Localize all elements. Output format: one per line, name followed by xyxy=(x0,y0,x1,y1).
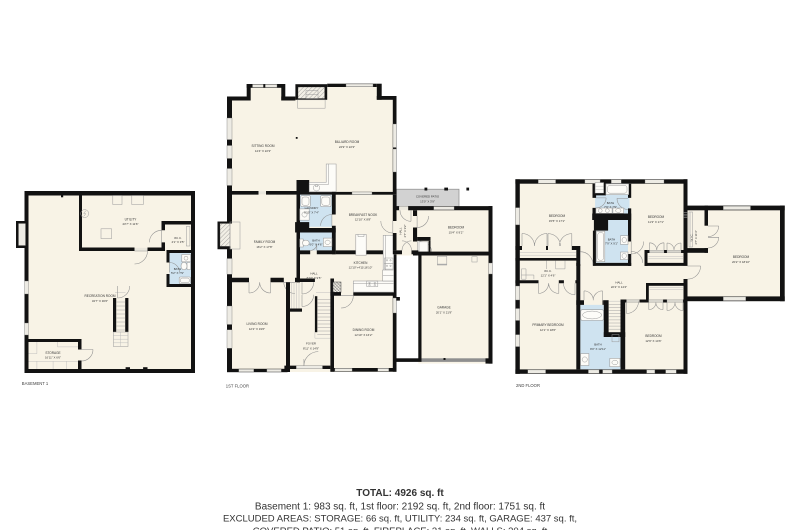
svg-text:FAMILY ROOM: FAMILY ROOM xyxy=(254,240,276,244)
svg-text:12'9" X 14'6": 12'9" X 14'6" xyxy=(645,339,661,343)
svg-text:HALL: HALL xyxy=(310,272,318,276)
svg-text:GARAGE: GARAGE xyxy=(437,306,450,310)
svg-text:DINING ROOM: DINING ROOM xyxy=(353,328,375,332)
svg-text:FOYER: FOYER xyxy=(306,342,316,346)
svg-text:LIVING ROOM: LIVING ROOM xyxy=(247,322,268,326)
svg-text:BREAKFAST NOOK: BREAKFAST NOOK xyxy=(349,213,378,217)
svg-text:6'10" X 7'4": 6'10" X 7'4" xyxy=(304,211,319,215)
svg-text:HALL: HALL xyxy=(399,227,403,235)
svg-text:BILLIARD ROOM: BILLIARD ROOM xyxy=(335,140,360,144)
svg-text:6'0" X 4'6": 6'0" X 4'6" xyxy=(309,243,322,247)
svg-text:12'2" X 19'6": 12'2" X 19'6" xyxy=(249,327,265,331)
svg-text:16'2" X 17'8": 16'2" X 17'8" xyxy=(256,245,272,249)
svg-text:RECREATION ROOM: RECREATION ROOM xyxy=(85,294,116,298)
svg-text:12'1" X 18'6": 12'1" X 18'6" xyxy=(540,328,556,332)
svg-text:7'9" X 7'9": 7'9" X 7'9" xyxy=(604,205,617,209)
svg-text:W.I.C.: W.I.C. xyxy=(544,269,552,273)
svg-text:13'0" X 3'9": 13'0" X 3'9" xyxy=(420,200,435,204)
svg-text:STORAGE: STORAGE xyxy=(45,351,60,355)
svg-text:5'2" X 7'9": 5'2" X 7'9" xyxy=(171,271,184,275)
svg-text:24'9" X 22'3": 24'9" X 22'3" xyxy=(339,145,355,149)
svg-text:COVERED PATIO: 51 sq. ft, FIRE: COVERED PATIO: 51 sq. ft, FIREPLACE: 31 … xyxy=(253,526,548,530)
svg-text:BATH: BATH xyxy=(594,343,602,347)
svg-text:SITTING ROOM: SITTING ROOM xyxy=(251,144,274,148)
svg-text:BEDROOM: BEDROOM xyxy=(648,215,665,219)
svg-text:15'4" X 9'2": 15'4" X 9'2" xyxy=(449,231,464,235)
svg-text:BEDROOM: BEDROOM xyxy=(549,214,566,218)
svg-text:BEDROOM: BEDROOM xyxy=(645,334,662,338)
svg-text:W.I.C.: W.I.C. xyxy=(690,233,694,241)
svg-text:20'1" X 21'9": 20'1" X 21'9" xyxy=(436,311,452,315)
svg-text:9'0" X 12'11": 9'0" X 12'11" xyxy=(590,347,606,351)
svg-text:4'7" X 9'2": 4'7" X 9'2" xyxy=(403,224,407,237)
svg-text:EXCLUDED AREAS: STORAGE: 66 sq: EXCLUDED AREAS: STORAGE: 66 sq. ft, UTIL… xyxy=(223,514,577,525)
svg-text:23'7" X 11'6": 23'7" X 11'6" xyxy=(122,222,138,226)
svg-text:BEDROOM: BEDROOM xyxy=(733,255,750,259)
svg-text:12'10"+4'11\16'10": 12'10"+4'11\16'10" xyxy=(349,266,373,270)
svg-text:22'2" X 14'4": 22'2" X 14'4" xyxy=(611,285,627,289)
svg-text:34'7" X 30'6": 34'7" X 30'6" xyxy=(92,299,108,303)
svg-text:TOTAL: 4926 sq. ft: TOTAL: 4926 sq. ft xyxy=(356,488,444,499)
svg-text:UTILITY: UTILITY xyxy=(125,218,138,222)
svg-text:2ND FLOOR: 2ND FLOOR xyxy=(516,383,540,388)
svg-text:LAUNDRY: LAUNDRY xyxy=(305,206,319,210)
svg-text:6'10" X 9'5": 6'10" X 9'5" xyxy=(307,276,322,280)
svg-text:12'10" X 8'8": 12'10" X 8'8" xyxy=(355,218,371,222)
svg-text:12'1" X 4'6": 12'1" X 4'6" xyxy=(541,274,556,278)
svg-text:12'10" X 16'2": 12'10" X 16'2" xyxy=(355,333,373,337)
svg-text:8'11" X 14'9": 8'11" X 14'9" xyxy=(303,347,319,351)
svg-text:PRIMARY BEDROOM: PRIMARY BEDROOM xyxy=(532,323,564,327)
svg-text:1ST FLOOR: 1ST FLOOR xyxy=(226,383,249,388)
svg-text:16'11" X 6'6": 16'11" X 6'6" xyxy=(45,356,61,360)
svg-text:15'5" X 17'1": 15'5" X 17'1" xyxy=(549,219,565,223)
svg-text:7'9" X 9'1": 7'9" X 9'1" xyxy=(605,242,618,246)
svg-text:KITCHEN: KITCHEN xyxy=(354,261,369,265)
svg-text:20'2" X 18'10": 20'2" X 18'10" xyxy=(732,260,750,264)
svg-text:4'1" X 3'5": 4'1" X 3'5" xyxy=(171,240,184,244)
svg-text:HALL: HALL xyxy=(615,281,623,285)
svg-text:BASEMENT 1: BASEMENT 1 xyxy=(22,381,49,386)
svg-text:BEDROOM: BEDROOM xyxy=(448,226,465,230)
svg-text:4'7" X 11'3": 4'7" X 11'3" xyxy=(694,230,698,245)
svg-text:Basement 1: 983 sq. ft, 1st fl: Basement 1: 983 sq. ft, 1st floor: 2192 … xyxy=(255,502,545,513)
svg-text:11'3" X 17'1": 11'3" X 17'1" xyxy=(648,220,664,224)
svg-text:14'4" X 22'3": 14'4" X 22'3" xyxy=(255,149,271,153)
svg-text:COVERED PATIO: COVERED PATIO xyxy=(416,195,440,199)
